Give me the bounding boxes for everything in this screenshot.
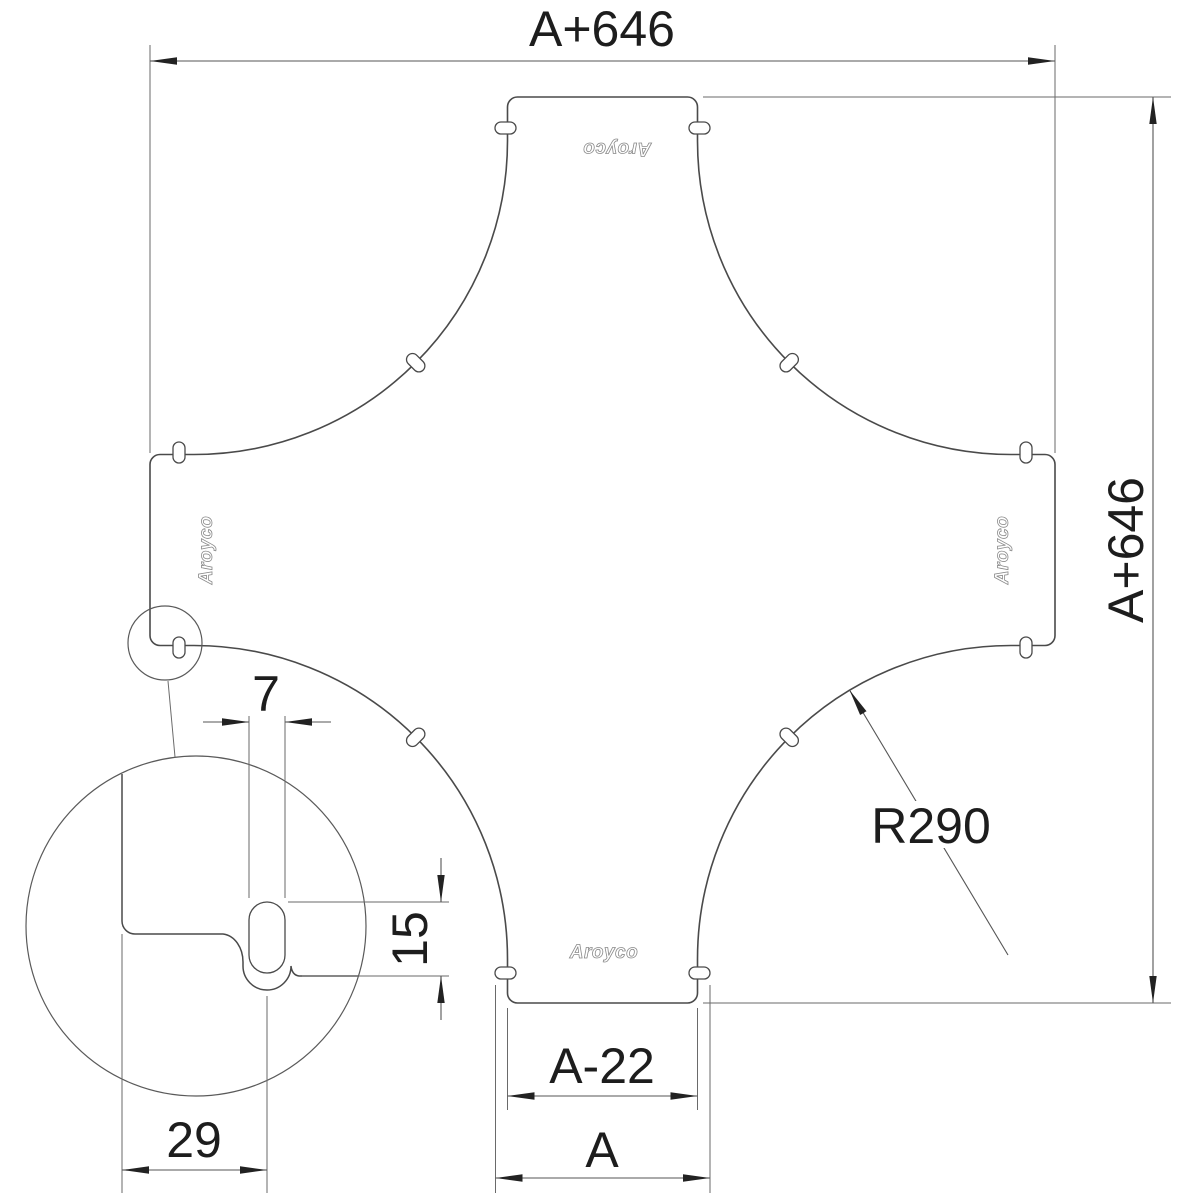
- dim-detail-slot-length-label: 15: [382, 911, 438, 967]
- mounting-slot: [1020, 442, 1032, 463]
- dim-overall-width: A+646: [150, 1, 1055, 453]
- mounting-slot: [173, 637, 185, 658]
- mounting-slot: [173, 442, 185, 463]
- dim-detail-slot-width: 7: [203, 666, 331, 722]
- detail-indicator-circle: [128, 606, 202, 680]
- mounting-slot: [1020, 637, 1032, 658]
- dim-detail-slot-edge-distance-label: 29: [166, 1112, 222, 1168]
- dim-detail-slot-width-label: 7: [252, 666, 280, 722]
- dim-fillet-radius: R290: [850, 690, 1009, 955]
- detail-view: 7 15 29: [26, 606, 449, 1193]
- dim-arm-end-width: A-22: [508, 1008, 698, 1110]
- dim-overall-height: A+646: [703, 97, 1171, 1003]
- dim-overall-width-label: A+646: [529, 1, 675, 57]
- detail-leader-line: [168, 681, 175, 757]
- dim-overall-height-label: A+646: [1098, 477, 1154, 623]
- mounting-slot: [689, 122, 710, 134]
- detail-part-edge: [122, 774, 359, 990]
- brand-logo: Aroyco: [196, 516, 217, 585]
- brand-logo: Aroyco: [569, 942, 638, 963]
- technical-drawing: Aroyco Aroyco Aroyco Aroyco A+646 A+646 …: [0, 0, 1200, 1200]
- dim-detail-slot-length: 15: [288, 858, 449, 1020]
- dim-detail-slot-edge-distance: 29: [122, 934, 267, 1193]
- detail-view-circle: [26, 756, 366, 1096]
- detail-slot: [249, 902, 285, 973]
- mounting-slot: [495, 122, 516, 134]
- dim-fillet-radius-label: R290: [871, 798, 991, 854]
- brand-logo: Aroyco: [992, 516, 1013, 585]
- mounting-slot: [495, 967, 516, 979]
- brand-logo: Aroyco: [583, 138, 652, 159]
- dim-arm-nominal-width-label: A: [585, 1122, 619, 1178]
- mounting-slot: [689, 967, 710, 979]
- dim-arm-end-width-label: A-22: [549, 1038, 655, 1094]
- part-outline: [150, 97, 1055, 1003]
